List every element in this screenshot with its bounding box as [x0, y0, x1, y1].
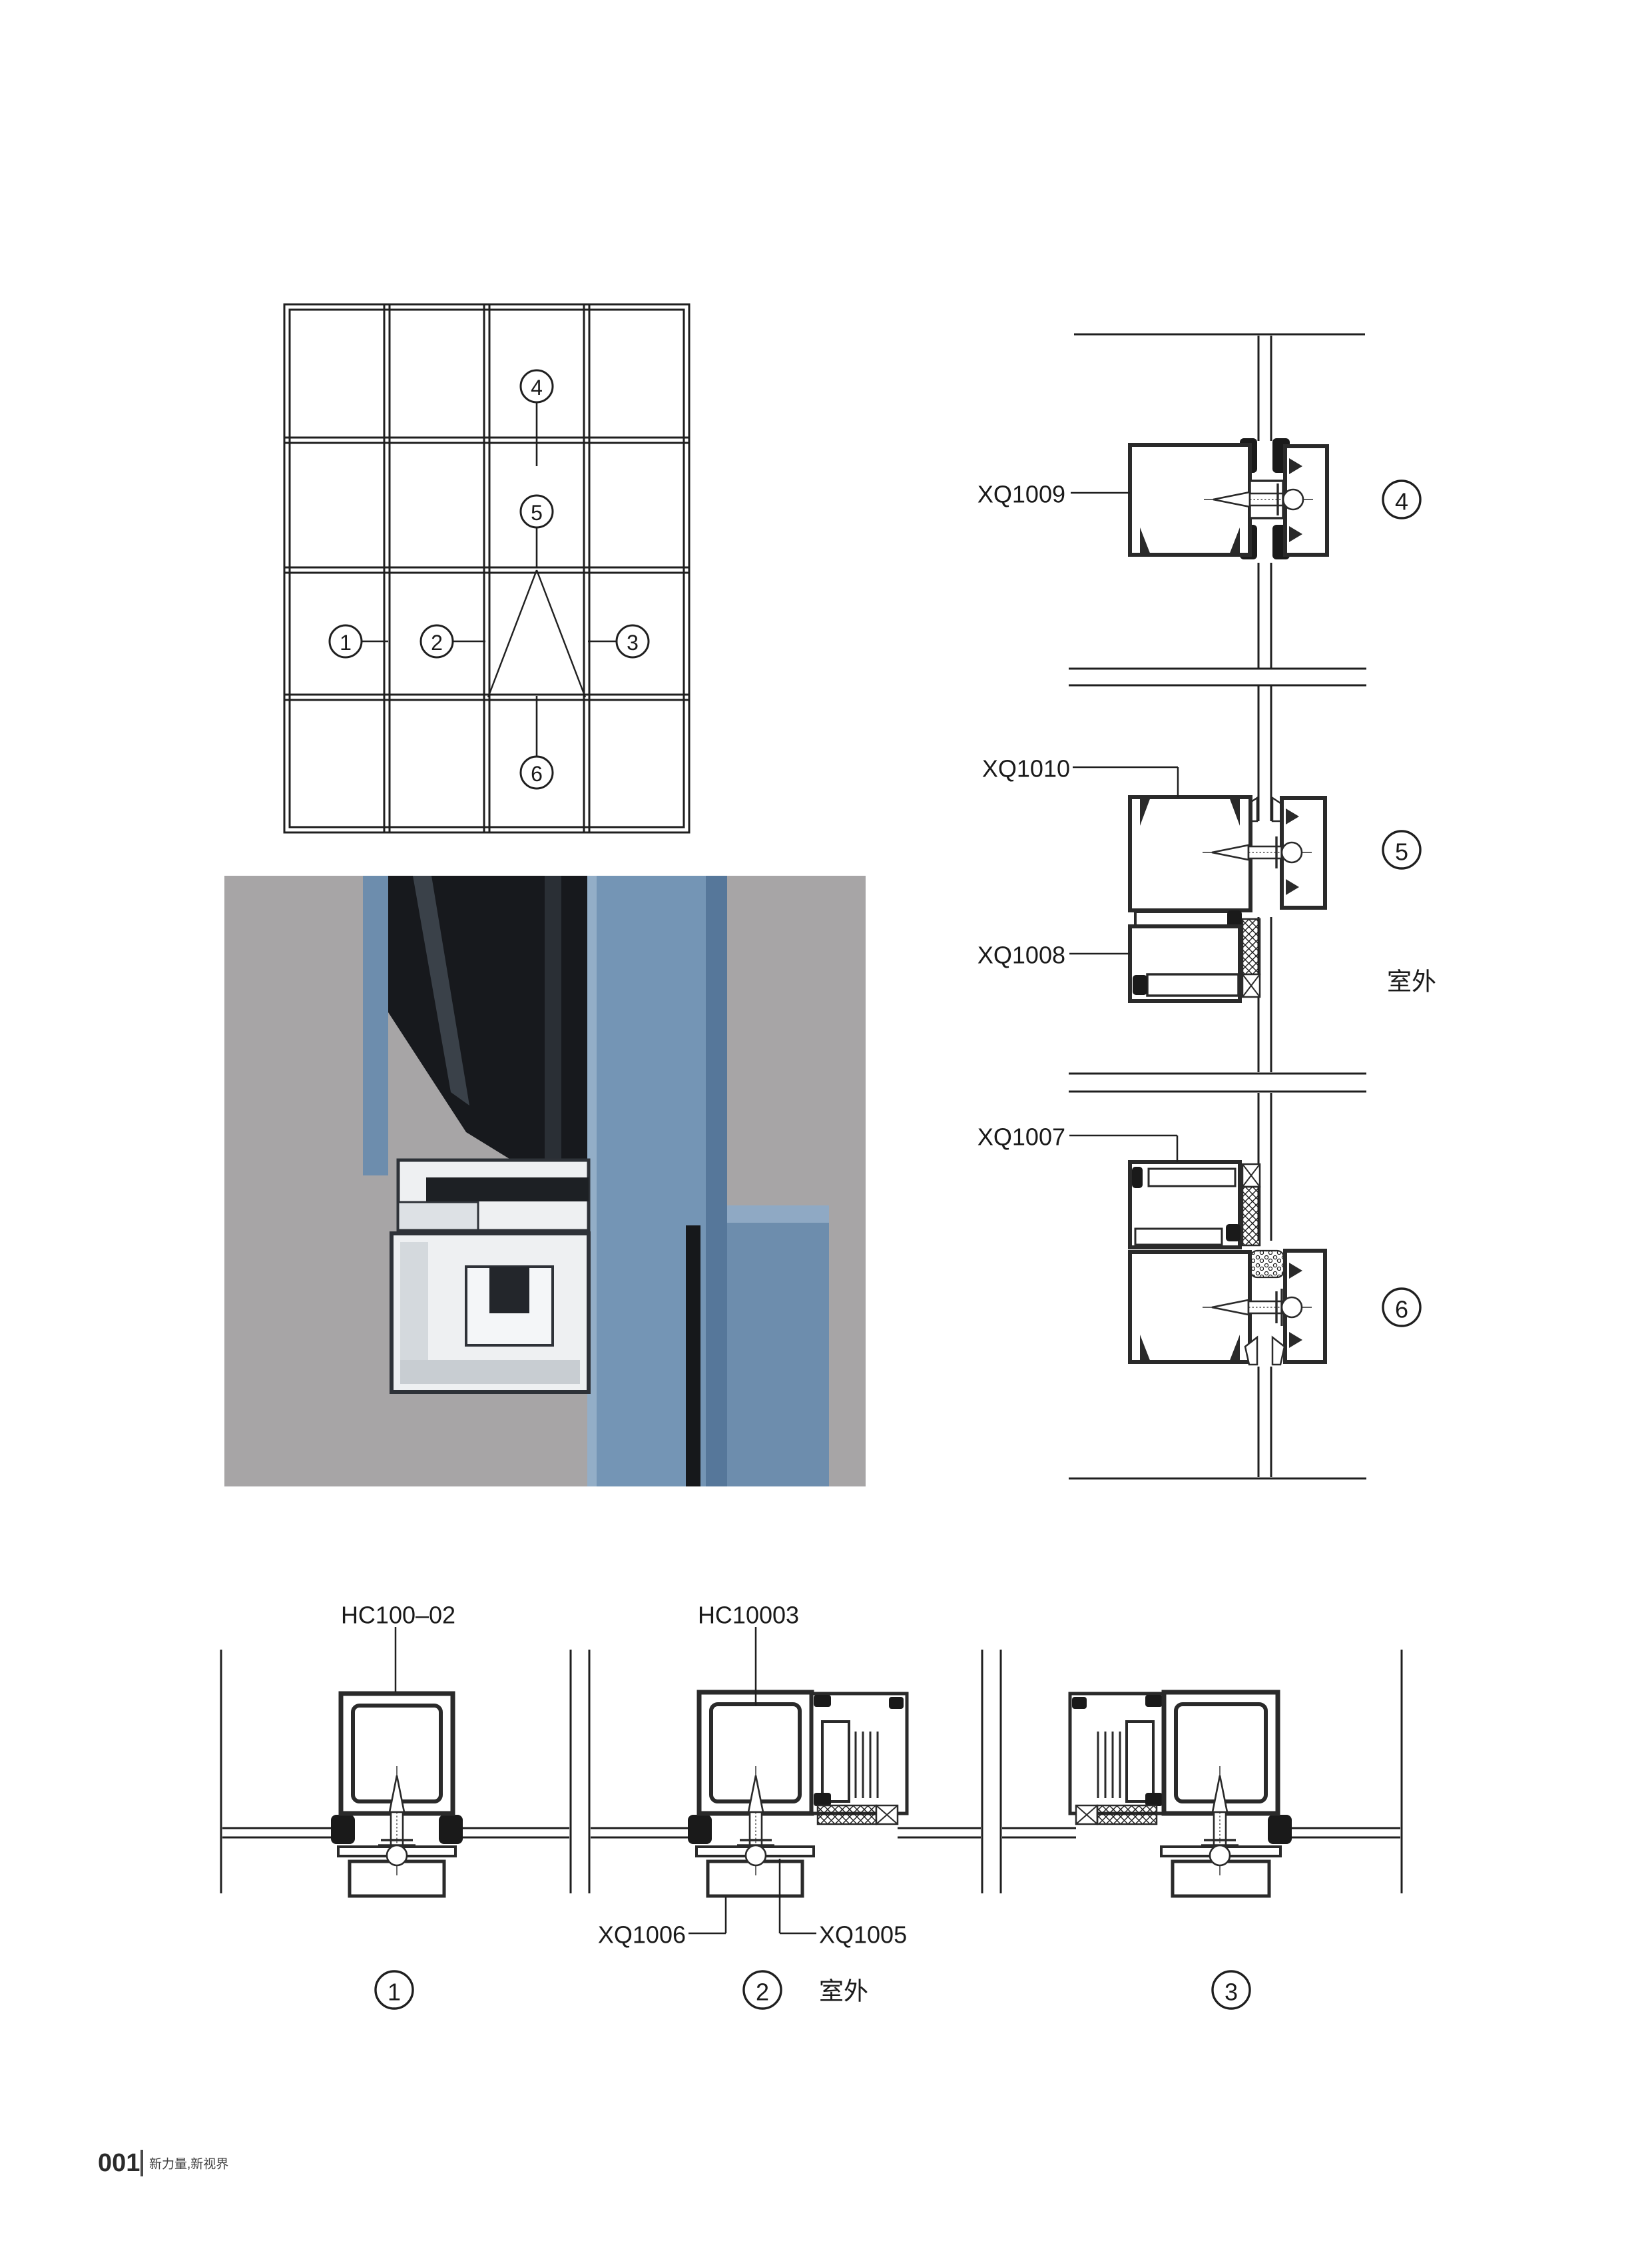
- render-cut-slot-upper: [426, 1177, 589, 1201]
- vent-frame-channel: [1135, 1229, 1222, 1245]
- detail-5-vent-head-section: [1130, 797, 1325, 1001]
- label-xq1007: XQ1007: [977, 1123, 1065, 1151]
- render-glass-reflection-2: [545, 876, 561, 1192]
- callout-2-number: 2: [431, 631, 443, 655]
- callout-3-number: 3: [627, 631, 639, 655]
- insulation-hatch: [1097, 1805, 1157, 1824]
- elevation-callout-2: 2: [421, 625, 453, 657]
- outdoor-label-right: 室外: [1387, 968, 1436, 996]
- render-3d: [224, 876, 866, 1486]
- section-callout-4: 4: [1383, 481, 1420, 518]
- vent-frame-lip: [1135, 912, 1230, 926]
- plan-callout-3: 3: [1213, 1971, 1250, 2009]
- catalog-page: 4 5 1 2 3 6: [0, 0, 1652, 2241]
- elevation-grid: [284, 304, 689, 832]
- label-hc10003: HC10003: [698, 1602, 799, 1629]
- clip: [889, 1697, 904, 1709]
- callout-4-number: 4: [531, 376, 543, 400]
- detail-3-vent-mullion-plan: [1070, 1692, 1292, 1896]
- page-footer: 001 新力量,新视界: [98, 2149, 228, 2177]
- render-glass-edge-seam: [686, 1225, 700, 1486]
- elevation-callout-4: 4: [521, 370, 553, 402]
- clip: [1145, 1695, 1163, 1707]
- render-transom-wing: [727, 1205, 829, 1486]
- section-callout-5: 5: [1383, 831, 1420, 868]
- footer-divider: [140, 2150, 143, 2176]
- clip: [1226, 1224, 1240, 1241]
- plan-callout-1: 1: [376, 1971, 413, 2009]
- insulation-hatch: [1242, 919, 1260, 974]
- detail-6-vent-sill-section: [1130, 1162, 1325, 1365]
- drawing-canvas: 4 5 1 2 3 6: [0, 0, 1652, 2241]
- callout-2-number: 2: [756, 1979, 769, 2006]
- footer-slogan: 新力量,新视界: [149, 2157, 228, 2172]
- cap-body: [708, 1861, 802, 1896]
- insulation-hatch: [1242, 1187, 1260, 1245]
- clip: [814, 1793, 831, 1806]
- label-xq1008: XQ1008: [977, 942, 1065, 969]
- clip: [814, 1695, 831, 1707]
- gasket-fork: [1272, 1337, 1284, 1365]
- label-xq1006: XQ1006: [598, 1921, 686, 1949]
- callout-4-number: 4: [1395, 488, 1408, 515]
- vent-frame-channel: [1149, 1169, 1235, 1186]
- vent-frame-channel: [1127, 1722, 1153, 1801]
- render-cut-step: [398, 1202, 478, 1230]
- label-xq1009: XQ1009: [977, 481, 1065, 508]
- elevation-callout-1: 1: [330, 625, 362, 657]
- vent-frame-channel: [1147, 974, 1239, 996]
- render-cut-shading-bottom: [400, 1360, 580, 1384]
- clip: [1132, 1167, 1143, 1188]
- outdoor-label-bottom: 室外: [819, 1978, 868, 2005]
- foam-gasket: [1250, 1251, 1284, 1277]
- label-hc100-02: HC100–02: [341, 1602, 455, 1629]
- horizontal-sections: HC100–02 HC10003 XQ1006 XQ1005 1 2 3 室外: [221, 1602, 1402, 2009]
- gasket: [331, 1815, 355, 1844]
- callout-1-number: 1: [340, 631, 352, 655]
- clip: [1145, 1793, 1163, 1806]
- elevation-callout-5: 5: [521, 495, 553, 527]
- render-transom-top-face: [727, 1205, 829, 1223]
- detail-1-mullion-plan: [331, 1694, 463, 1896]
- callout-6-number: 6: [531, 762, 543, 786]
- plan-callout-2: 2: [744, 1971, 781, 2009]
- callout-6-number: 6: [1395, 1296, 1408, 1323]
- page-number: 001: [98, 2149, 140, 2177]
- elevation-callout-3: 3: [617, 625, 649, 657]
- render-mullion-side: [706, 876, 727, 1486]
- render-left-panel-edge: [363, 876, 388, 1175]
- clip: [1072, 1697, 1087, 1709]
- cap-body: [1173, 1861, 1269, 1896]
- vent-opening-symbol: [488, 570, 585, 697]
- detail-2-mullion-vent-plan: [688, 1692, 907, 1896]
- label-xq1005: XQ1005: [819, 1921, 907, 1949]
- insulation-hatch: [818, 1805, 876, 1824]
- clip: [1133, 975, 1147, 995]
- callout-1-number: 1: [388, 1979, 401, 2006]
- callout-3-number: 3: [1225, 1979, 1238, 2006]
- label-xq1010: XQ1010: [982, 755, 1070, 783]
- gasket: [1268, 1815, 1292, 1844]
- detail-4-transom-section: [1130, 438, 1327, 559]
- callout-5-number: 5: [531, 501, 543, 525]
- gasket: [439, 1815, 463, 1844]
- vent-frame-channel: [822, 1722, 849, 1801]
- gasket: [688, 1815, 712, 1844]
- vertical-sections: XQ1009 XQ1010 XQ1008 XQ1007 4 5 6 室外: [977, 334, 1436, 1478]
- callout-5-number: 5: [1395, 838, 1408, 866]
- elevation-callout-6: 6: [521, 757, 553, 789]
- section-callout-6: 6: [1383, 1289, 1420, 1326]
- render-cut-subslot: [489, 1267, 529, 1313]
